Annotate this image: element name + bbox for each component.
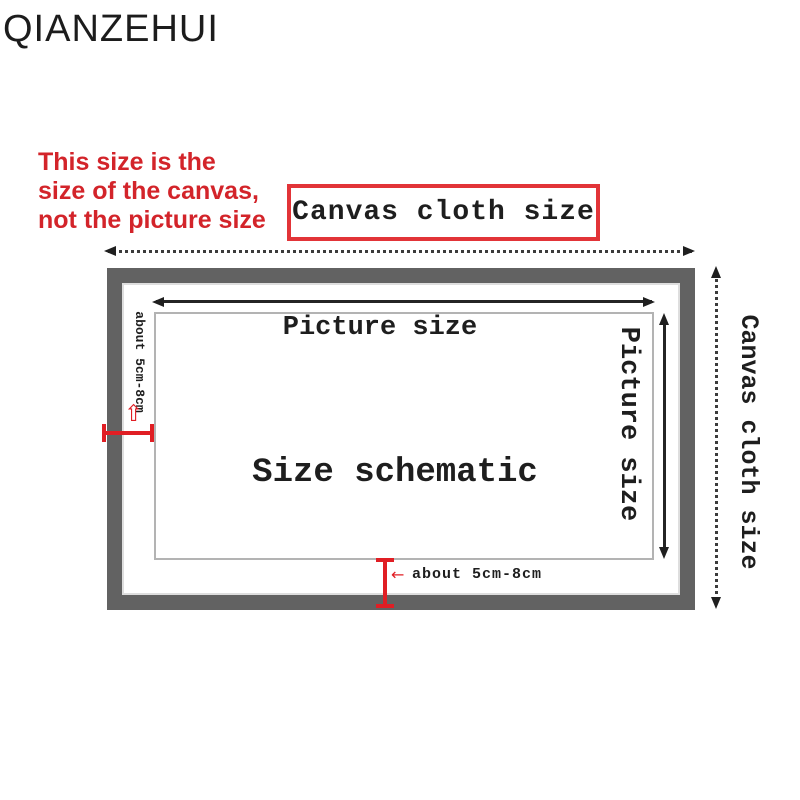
picture-size-label-right: Picture size	[615, 314, 643, 534]
arrowhead-left-icon	[152, 297, 164, 307]
arrowhead-right-icon	[643, 297, 655, 307]
size-schematic-image: QIANZEHUI This size is the size of the c…	[0, 0, 800, 800]
arrowhead-left-icon	[104, 246, 116, 256]
arrowhead-down-icon	[659, 547, 669, 559]
picture-width-dimension-line	[156, 300, 652, 303]
canvas-cloth-size-label: Canvas cloth size	[292, 197, 595, 228]
brand-logo: QIANZEHUI	[3, 8, 219, 51]
left-arrow-icon: ←	[391, 567, 404, 583]
picture-area-rect	[154, 312, 654, 560]
canvas-cloth-size-label-box: Canvas cloth size	[287, 184, 600, 241]
canvas-cloth-size-label-right: Canvas cloth size	[735, 312, 763, 572]
bottom-margin-marker-line	[383, 560, 387, 608]
arrowhead-up-icon	[659, 313, 669, 325]
size-schematic-label: Size schematic	[235, 454, 555, 492]
left-margin-marker-line	[104, 431, 154, 435]
warning-line-3: not the picture size	[38, 206, 266, 235]
up-arrow-icon: ⇧	[124, 403, 143, 426]
arrowhead-up-icon	[711, 266, 721, 278]
canvas-height-dimension-line	[715, 272, 718, 602]
left-margin-marker-cap	[102, 424, 106, 442]
picture-size-label-top: Picture size	[262, 313, 498, 343]
warning-line-2: size of the canvas,	[38, 177, 266, 206]
left-margin-marker-cap	[150, 424, 154, 442]
arrowhead-down-icon	[711, 597, 721, 609]
bottom-margin-marker-cap	[376, 604, 394, 608]
bottom-margin-marker-cap	[376, 558, 394, 562]
warning-line-1: This size is the	[38, 148, 266, 177]
warning-text: This size is the size of the canvas, not…	[38, 148, 266, 235]
canvas-width-dimension-line	[108, 250, 692, 253]
picture-height-dimension-line	[663, 320, 666, 552]
margin-bottom-label: about 5cm-8cm	[412, 566, 542, 583]
arrowhead-right-icon	[683, 246, 695, 256]
